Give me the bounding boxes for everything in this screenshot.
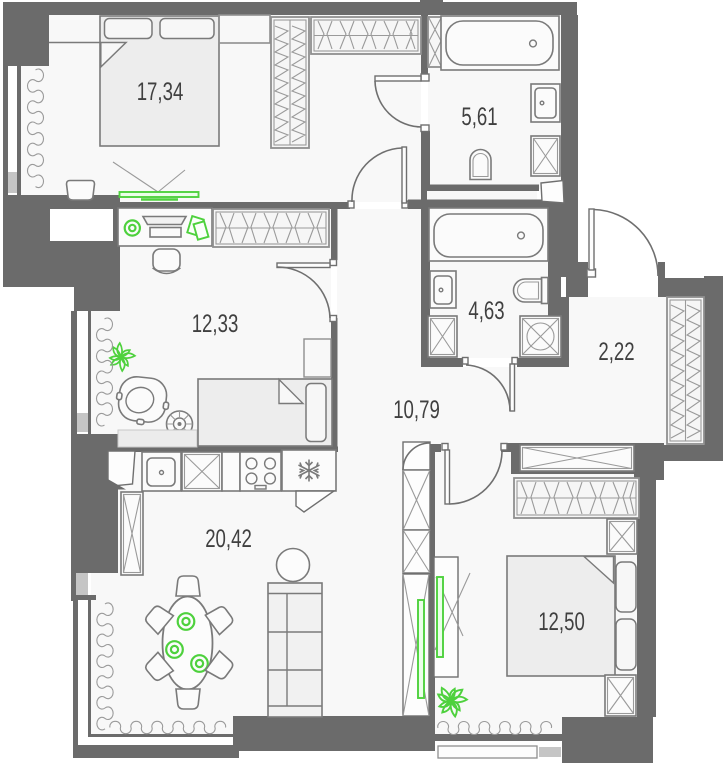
svg-text:12,50: 12,50	[538, 608, 585, 636]
svg-text:12,33: 12,33	[192, 310, 239, 338]
svg-text:4,63: 4,63	[468, 297, 504, 325]
svg-text:10,79: 10,79	[393, 396, 440, 424]
svg-text:17,34: 17,34	[137, 78, 184, 106]
svg-text:2,22: 2,22	[598, 338, 634, 366]
svg-text:5,61: 5,61	[461, 103, 497, 131]
svg-text:20,42: 20,42	[205, 525, 252, 553]
